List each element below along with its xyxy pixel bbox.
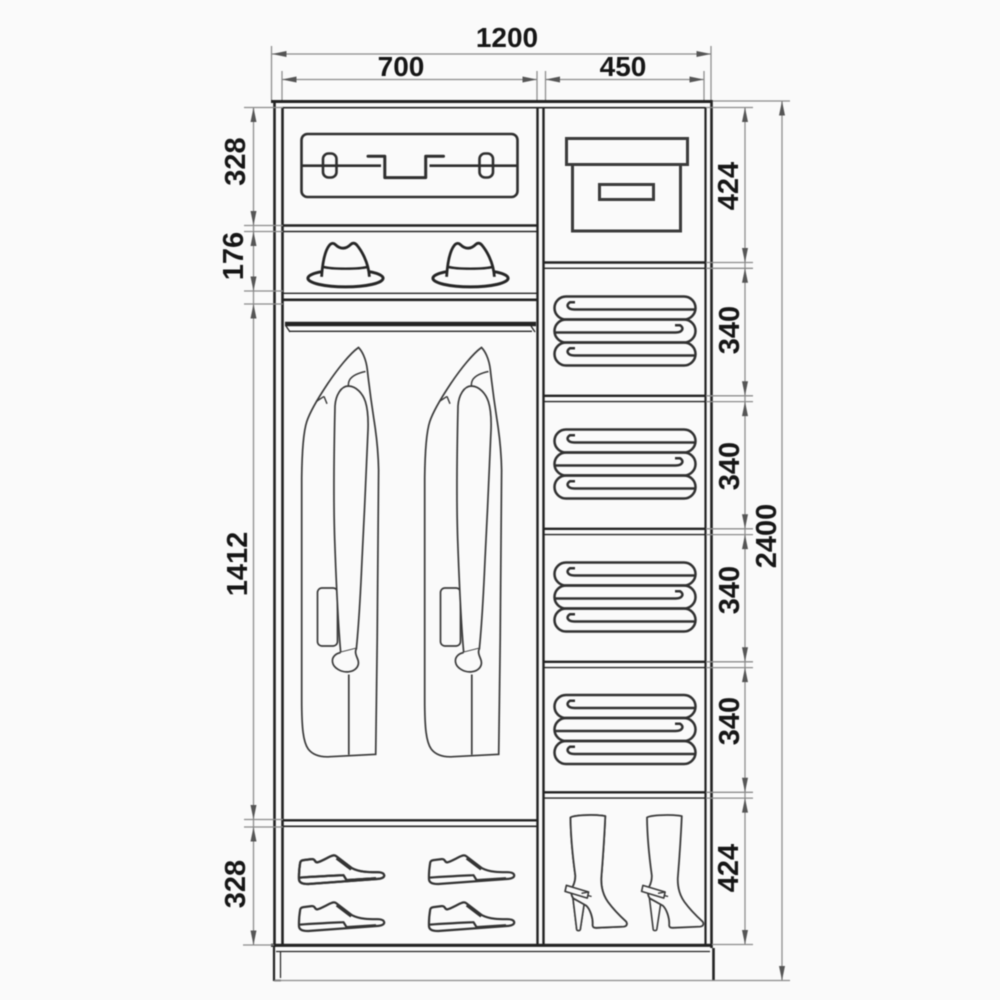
svg-text:2400: 2400 (751, 504, 783, 569)
svg-text:340: 340 (714, 306, 746, 354)
svg-text:450: 450 (600, 51, 647, 82)
svg-text:340: 340 (714, 442, 746, 490)
svg-text:328: 328 (220, 137, 252, 185)
svg-text:340: 340 (714, 697, 746, 745)
svg-text:1412: 1412 (222, 532, 254, 597)
svg-text:424: 424 (713, 162, 745, 210)
svg-text:328: 328 (220, 860, 252, 908)
svg-text:176: 176 (218, 232, 250, 280)
svg-text:700: 700 (378, 51, 425, 82)
svg-text:1200: 1200 (476, 22, 538, 53)
svg-text:424: 424 (713, 844, 745, 892)
svg-text:340: 340 (714, 566, 746, 614)
